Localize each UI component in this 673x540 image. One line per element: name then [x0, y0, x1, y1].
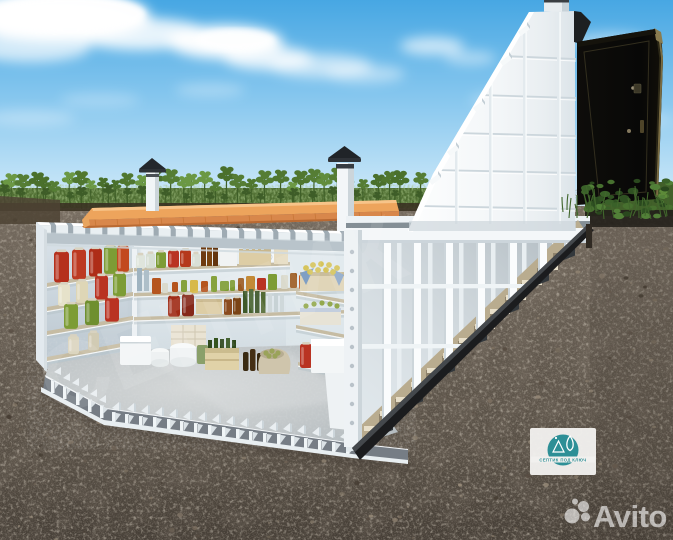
svg-text:Avito: Avito	[593, 499, 667, 534]
svg-text:СЕПТИК ПОД КЛЮЧ: СЕПТИК ПОД КЛЮЧ	[539, 458, 586, 463]
